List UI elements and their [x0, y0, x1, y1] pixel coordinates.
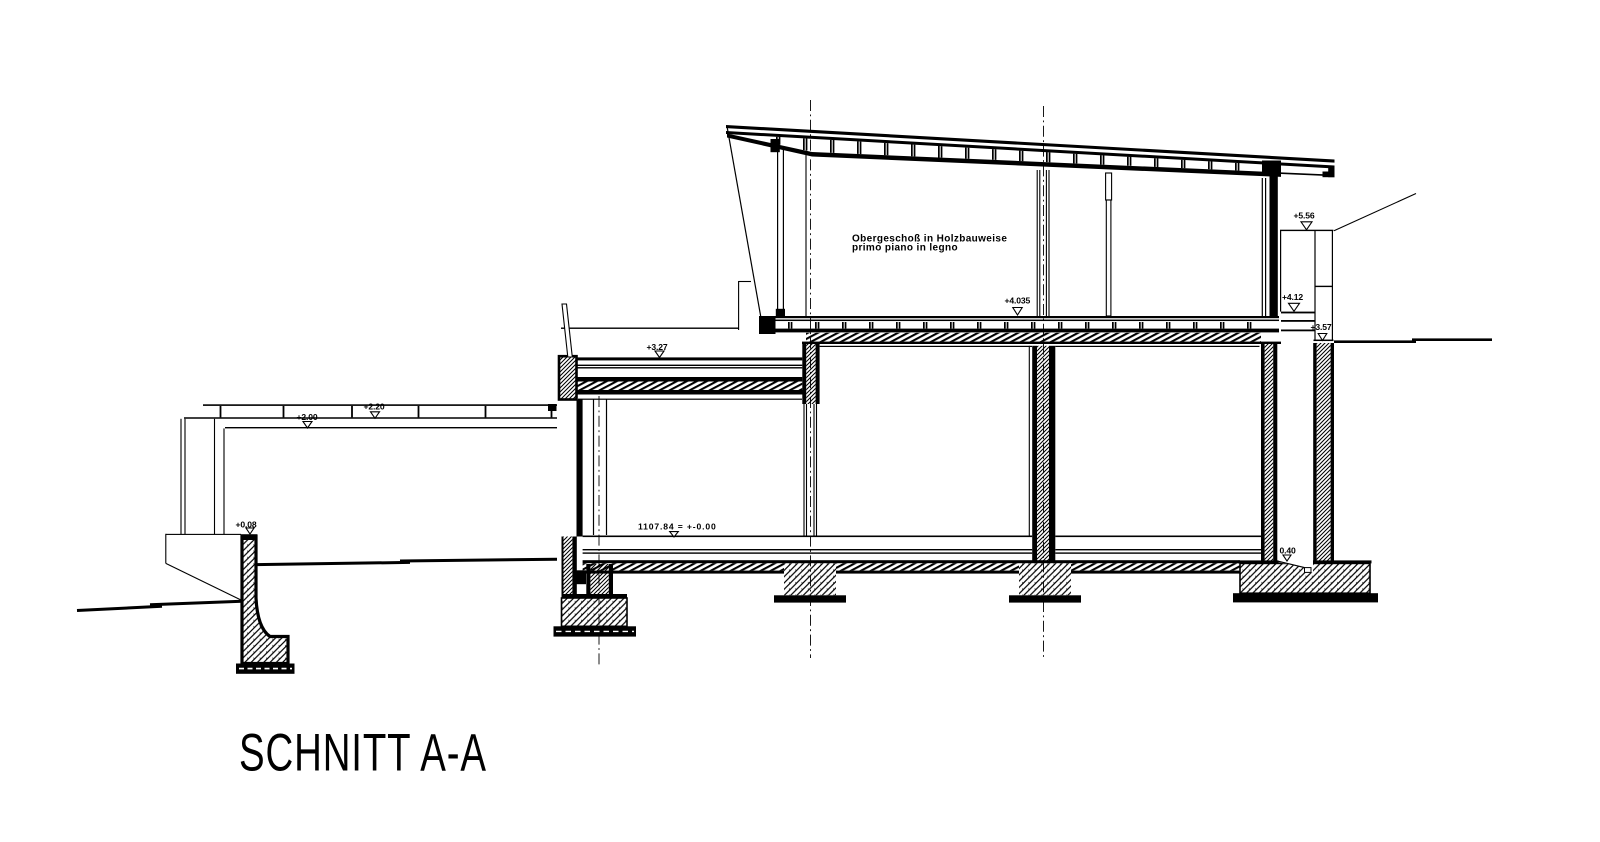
svg-text:+5.56: +5.56 — [1294, 211, 1315, 221]
svg-text:+4.12: +4.12 — [1282, 292, 1303, 302]
svg-text:0.40: 0.40 — [1280, 545, 1296, 555]
svg-text:SCHNITT A-A: SCHNITT A-A — [239, 722, 487, 782]
svg-text:+4.035: +4.035 — [1005, 296, 1031, 306]
svg-text:+3.57: +3.57 — [1311, 322, 1332, 332]
svg-text:primo piano in legno: primo piano in legno — [852, 243, 958, 254]
svg-text:+2.00: +2.00 — [297, 412, 318, 422]
svg-text:1107.84 = +-0.00: 1107.84 = +-0.00 — [638, 522, 717, 532]
svg-text:+2.20: +2.20 — [364, 401, 385, 411]
